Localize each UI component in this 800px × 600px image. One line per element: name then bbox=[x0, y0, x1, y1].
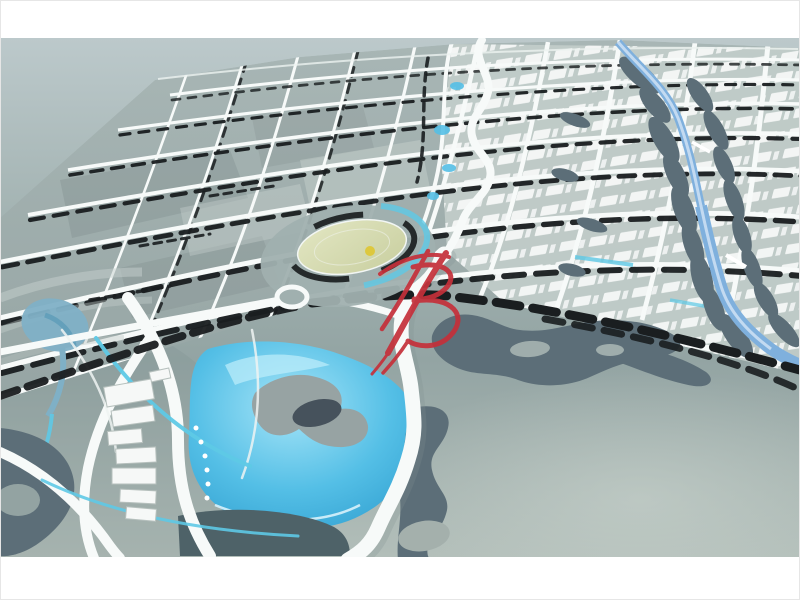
corridor-pond bbox=[427, 192, 439, 200]
corridor-pond bbox=[442, 164, 456, 172]
corridor-pond bbox=[434, 125, 450, 135]
corridor-pond bbox=[450, 82, 464, 90]
roundabout bbox=[277, 287, 307, 307]
slate-hole bbox=[596, 344, 624, 356]
model-photograph bbox=[0, 0, 800, 600]
frame-top-band bbox=[0, 0, 800, 38]
plaza-landmark-dot bbox=[365, 246, 375, 256]
frame-bottom-band bbox=[0, 557, 800, 600]
scene-svg bbox=[0, 0, 800, 600]
